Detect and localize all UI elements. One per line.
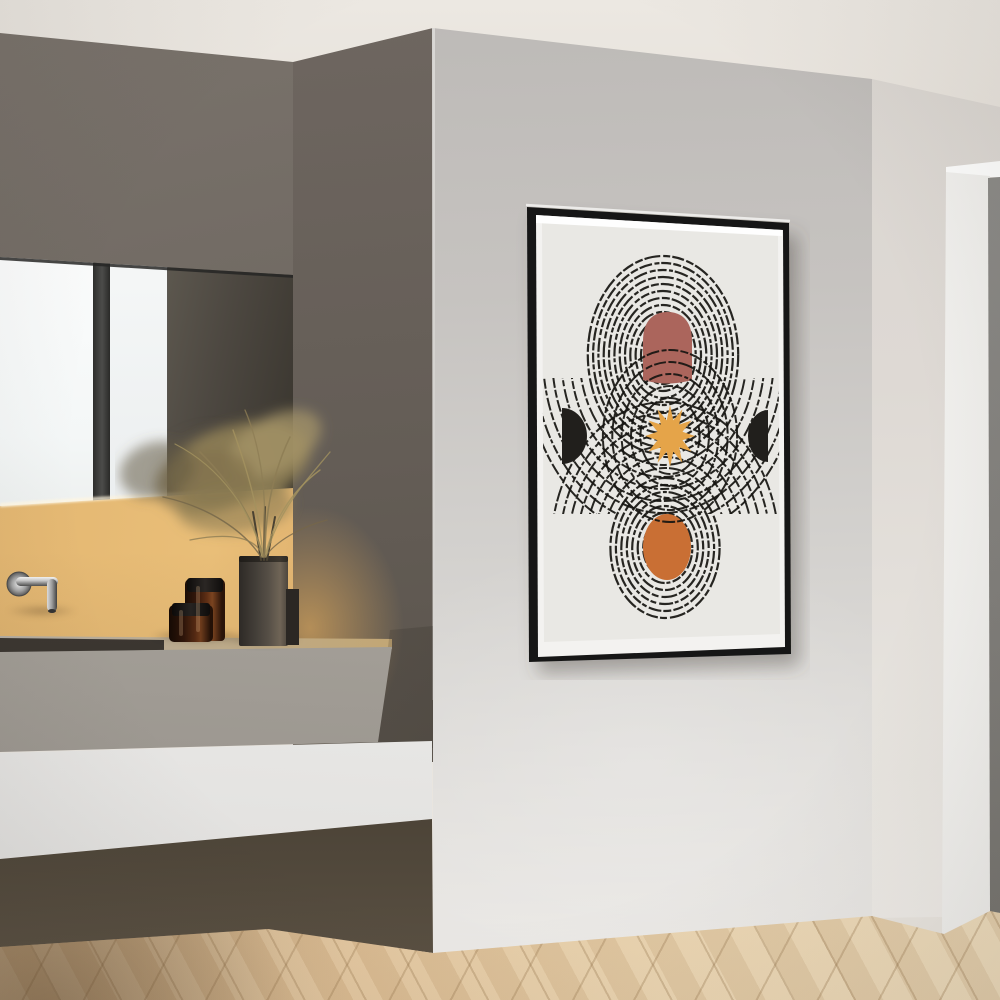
mirror-frame-divider <box>93 248 111 516</box>
jar-highlight <box>196 586 200 632</box>
vase-rim <box>239 556 288 562</box>
faucet-shadow <box>6 604 78 618</box>
jar-highlight-small <box>179 610 183 636</box>
bathroom-photo <box>0 0 1000 1000</box>
amber-jar-small-lid <box>172 603 210 616</box>
amber-jar-tall-lid <box>187 578 223 592</box>
plant-vase <box>239 556 288 646</box>
mirror-window-reflection <box>0 248 94 516</box>
vase-step <box>286 589 299 645</box>
